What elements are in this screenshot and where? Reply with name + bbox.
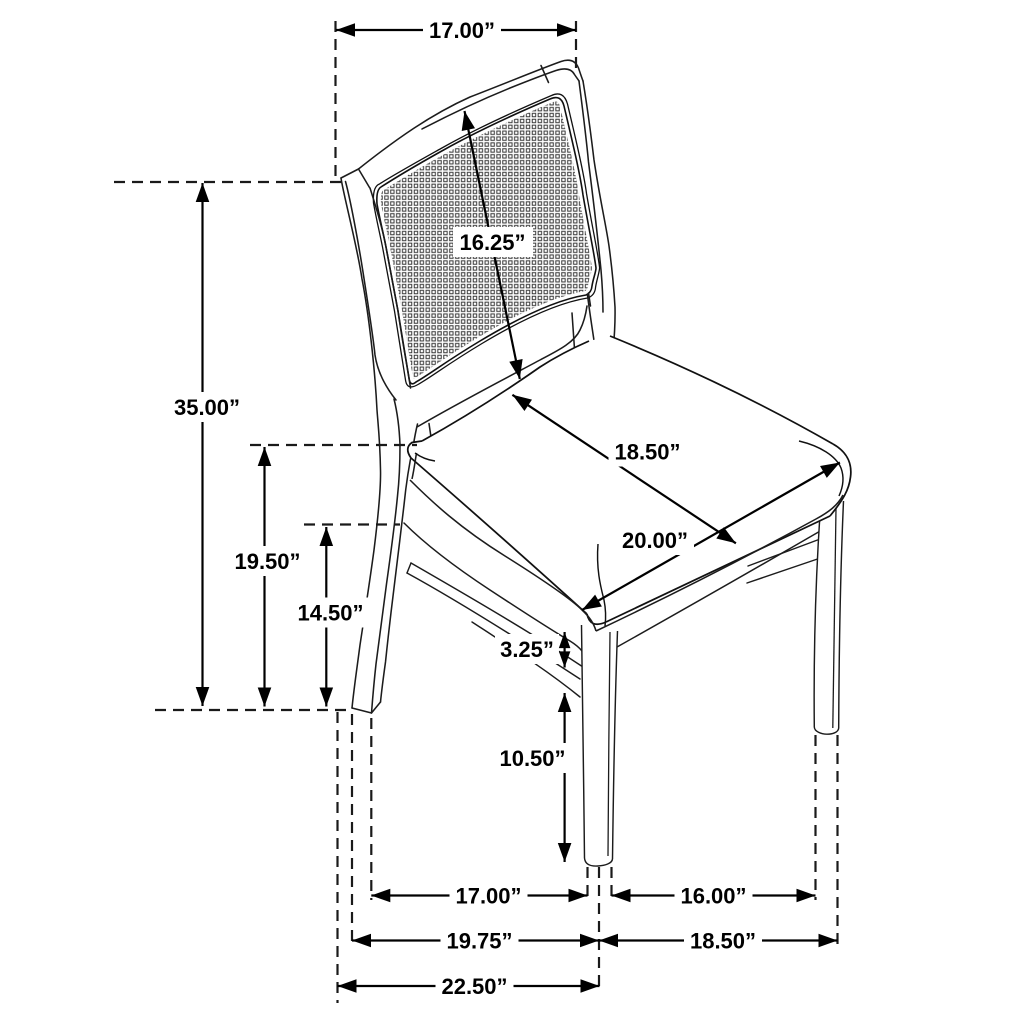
svg-text:20.00”: 20.00” — [622, 528, 688, 553]
svg-text:18.50”: 18.50” — [690, 929, 756, 954]
svg-text:19.75”: 19.75” — [446, 929, 512, 954]
svg-text:3.25”: 3.25” — [500, 637, 554, 662]
svg-text:18.50”: 18.50” — [614, 440, 680, 465]
svg-text:19.50”: 19.50” — [234, 549, 300, 574]
svg-text:22.50”: 22.50” — [441, 974, 507, 999]
svg-text:17.00”: 17.00” — [429, 18, 495, 43]
svg-text:10.50”: 10.50” — [499, 746, 565, 771]
svg-text:16.00”: 16.00” — [680, 884, 746, 909]
svg-text:17.00”: 17.00” — [455, 884, 521, 909]
svg-text:35.00”: 35.00” — [174, 395, 240, 420]
svg-text:14.50”: 14.50” — [297, 601, 363, 626]
svg-text:16.25”: 16.25” — [459, 230, 525, 255]
